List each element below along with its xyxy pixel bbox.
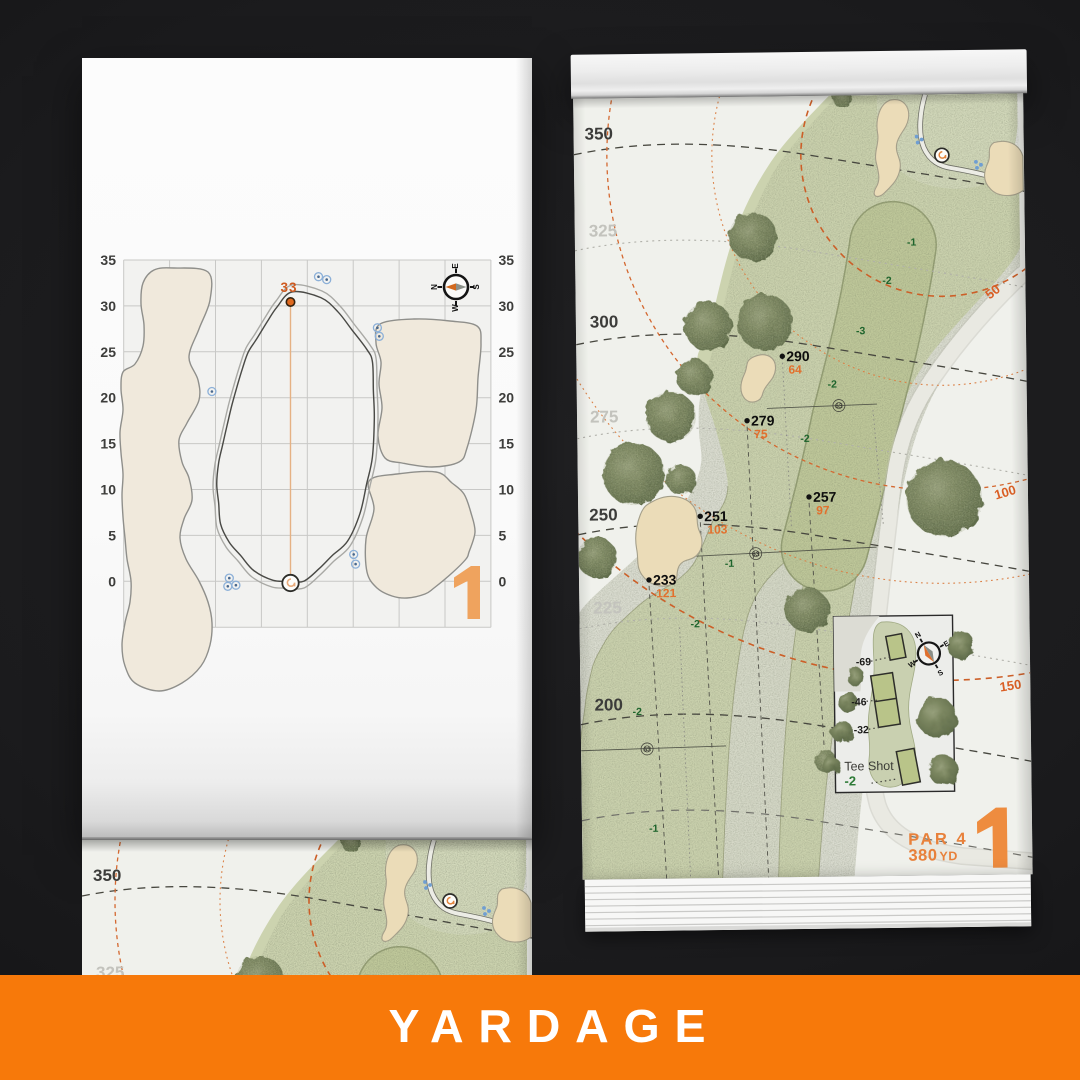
svg-text:S: S [472,284,481,290]
svg-text:35: 35 [100,252,116,268]
svg-text:15: 15 [100,436,116,452]
svg-text:W: W [451,304,460,312]
svg-text:15: 15 [499,436,515,452]
svg-text:0: 0 [499,573,507,589]
svg-text:30: 30 [499,298,515,314]
svg-text:25: 25 [100,344,116,360]
svg-text:33: 33 [280,280,297,295]
svg-text:30: 30 [100,298,116,314]
svg-text:10: 10 [499,482,515,498]
svg-text:20: 20 [100,390,116,406]
svg-text:5: 5 [108,527,116,543]
svg-text:5: 5 [499,527,507,543]
svg-text:N: N [430,284,439,290]
svg-text:0: 0 [108,573,116,589]
svg-text:20: 20 [499,390,515,406]
svg-text:35: 35 [499,252,515,268]
svg-text:10: 10 [100,482,116,498]
svg-text:25: 25 [499,344,515,360]
svg-text:E: E [451,263,460,269]
